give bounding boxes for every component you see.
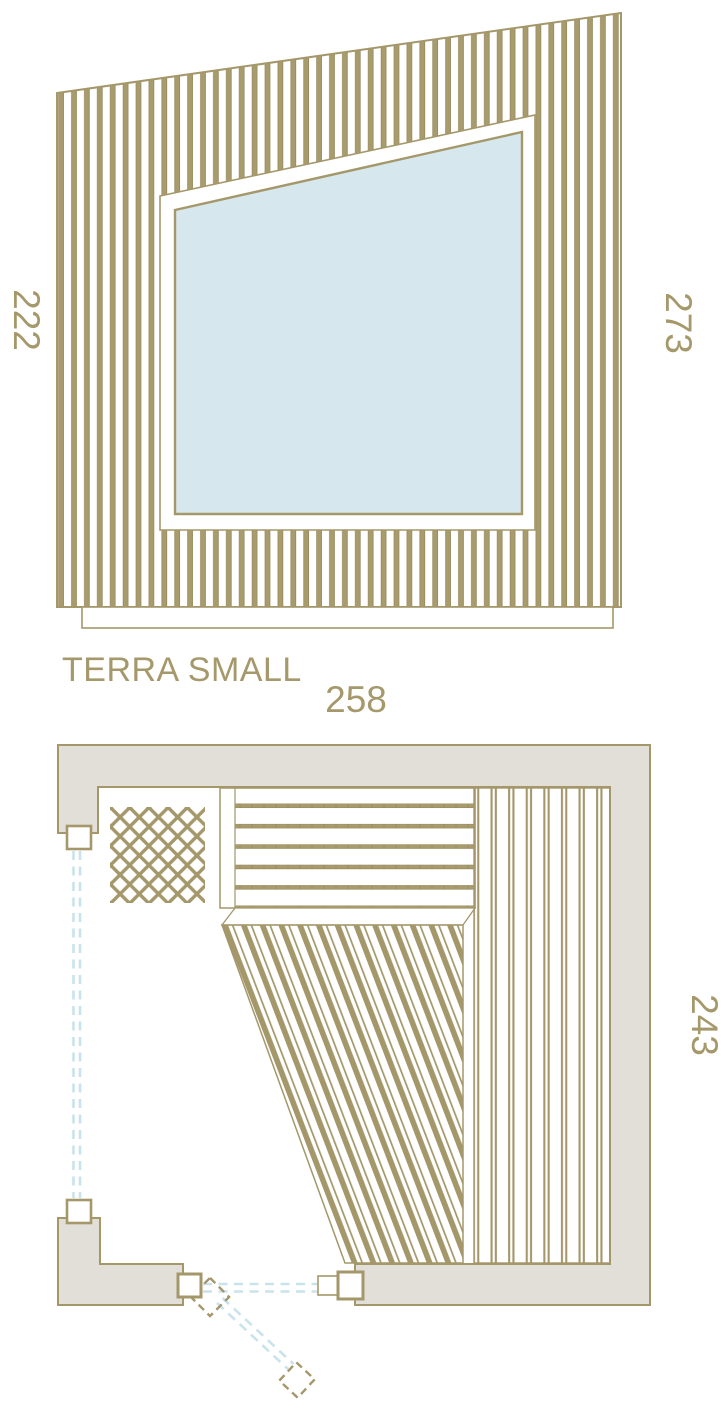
drawing-canvas: 222 273 TERRA SMALL (0, 0, 725, 1412)
bench-right-vertical (474, 788, 610, 1263)
dim-plan-right: 243 (684, 994, 725, 1056)
bench-edge (222, 908, 475, 925)
dim-elevation-left: 222 (6, 289, 47, 351)
elevation-view: 222 273 (6, 13, 699, 628)
corner-post-top-left (67, 826, 91, 849)
wall-bottom-left (58, 1218, 183, 1305)
bench-main-diagonal (222, 925, 463, 1263)
door-post-right-small (318, 1276, 338, 1295)
dim-plan-top: 258 (325, 679, 387, 720)
glass-door-open (217, 1298, 294, 1369)
door-post-left (178, 1274, 201, 1297)
base-plinth (82, 607, 613, 628)
dim-elevation-right: 273 (658, 292, 699, 354)
corner-post-bottom-left (67, 1200, 91, 1223)
bench-upper (220, 788, 475, 908)
glass-wall-left (74, 851, 81, 1198)
product-title: TERRA SMALL (62, 651, 302, 689)
terra-small-drawing: 222 273 TERRA SMALL (0, 0, 725, 1412)
floor-plan-view: 258 243 (58, 679, 725, 1398)
door-post-right (338, 1272, 363, 1299)
heater (110, 807, 205, 903)
